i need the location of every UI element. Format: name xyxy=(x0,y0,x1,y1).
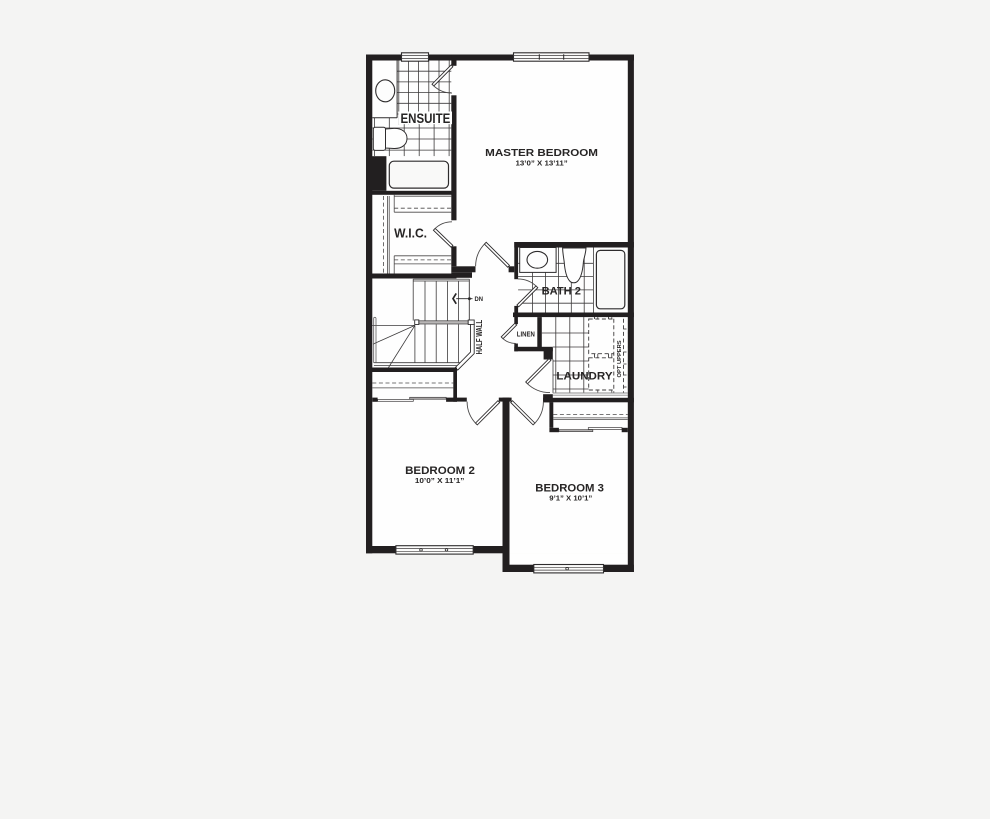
svg-text:MASTER BEDROOM: MASTER BEDROOM xyxy=(485,148,598,159)
svg-text:10’0” X 11’1”: 10’0” X 11’1” xyxy=(415,476,465,485)
svg-text:W.I.C.: W.I.C. xyxy=(394,226,427,241)
svg-text:OPT UPPERS: OPT UPPERS xyxy=(617,340,623,377)
svg-text:LINEN: LINEN xyxy=(517,330,535,338)
svg-text:LAUNDRY: LAUNDRY xyxy=(556,370,613,382)
svg-text:BATH 2: BATH 2 xyxy=(542,285,581,297)
svg-text:HALF WALL: HALF WALL xyxy=(475,320,484,355)
svg-text:9’1” X 10’1”: 9’1” X 10’1” xyxy=(549,493,592,502)
svg-text:ENSUITE: ENSUITE xyxy=(401,111,451,126)
svg-text:13’0” X 13’11”: 13’0” X 13’11” xyxy=(516,158,568,167)
svg-text:DN: DN xyxy=(475,296,484,303)
